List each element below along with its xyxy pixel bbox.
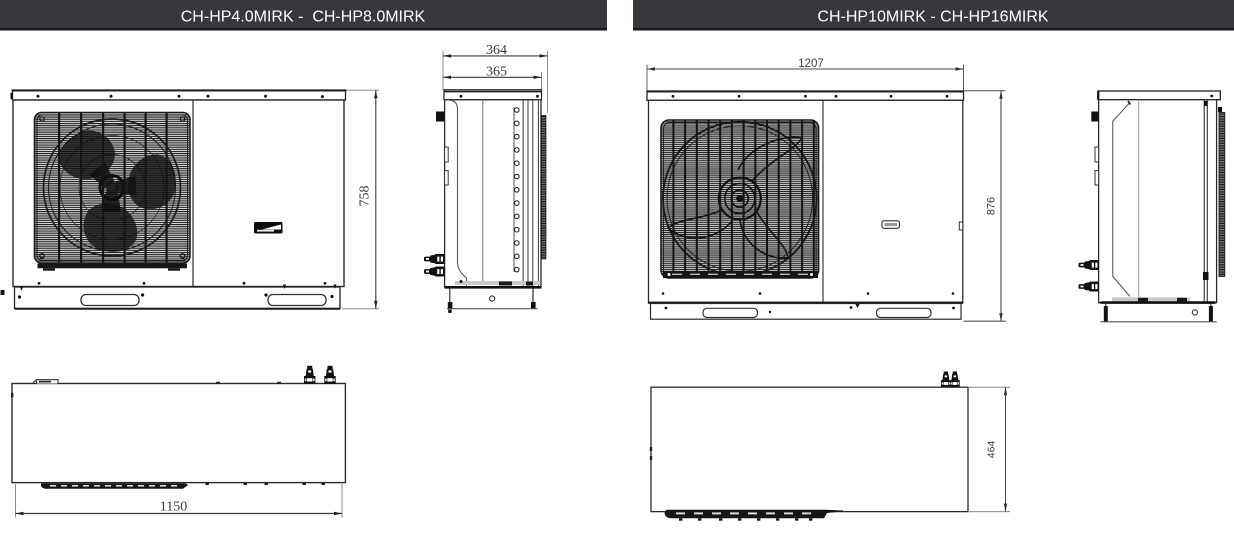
svg-text:1207: 1207 bbox=[798, 58, 824, 70]
svg-text:365: 365 bbox=[486, 64, 507, 79]
svg-text:CH-HP4.0MIRK - CH-HP8.0MIRK: CH-HP4.0MIRK - CH-HP8.0MIRK bbox=[181, 9, 426, 26]
svg-text:CH-HP10MIRK - CH-HP16MIRK: CH-HP10MIRK - CH-HP16MIRK bbox=[817, 9, 1048, 26]
svg-text:758: 758 bbox=[358, 186, 373, 207]
svg-text:464: 464 bbox=[986, 441, 998, 459]
svg-text:876: 876 bbox=[986, 197, 998, 215]
svg-text:364: 364 bbox=[486, 43, 507, 58]
svg-text:1150: 1150 bbox=[160, 500, 187, 515]
